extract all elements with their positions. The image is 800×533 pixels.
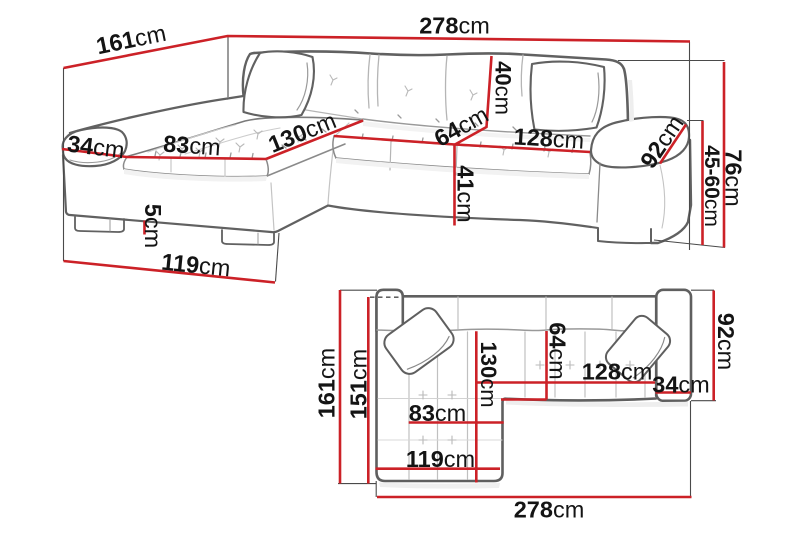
svg-text:128cm: 128cm: [582, 359, 653, 385]
svg-text:64cm: 64cm: [545, 322, 571, 379]
svg-text:83cm: 83cm: [409, 400, 466, 426]
svg-text:45-60cm: 45-60cm: [700, 145, 723, 227]
svg-text:83cm: 83cm: [162, 131, 221, 161]
svg-text:161cm: 161cm: [314, 348, 340, 419]
svg-text:151cm: 151cm: [346, 349, 372, 420]
svg-text:5cm: 5cm: [140, 204, 166, 248]
svg-text:41cm: 41cm: [453, 165, 479, 222]
svg-text:130cm: 130cm: [476, 341, 501, 407]
svg-text:278cm: 278cm: [514, 497, 585, 523]
svg-text:76cm: 76cm: [721, 149, 747, 206]
svg-text:34cm: 34cm: [652, 372, 709, 398]
svg-text:278cm: 278cm: [419, 13, 490, 39]
svg-text:119cm: 119cm: [406, 446, 475, 472]
svg-text:92cm: 92cm: [713, 313, 739, 370]
svg-text:40cm: 40cm: [491, 61, 516, 115]
svg-text:128cm: 128cm: [513, 123, 585, 153]
